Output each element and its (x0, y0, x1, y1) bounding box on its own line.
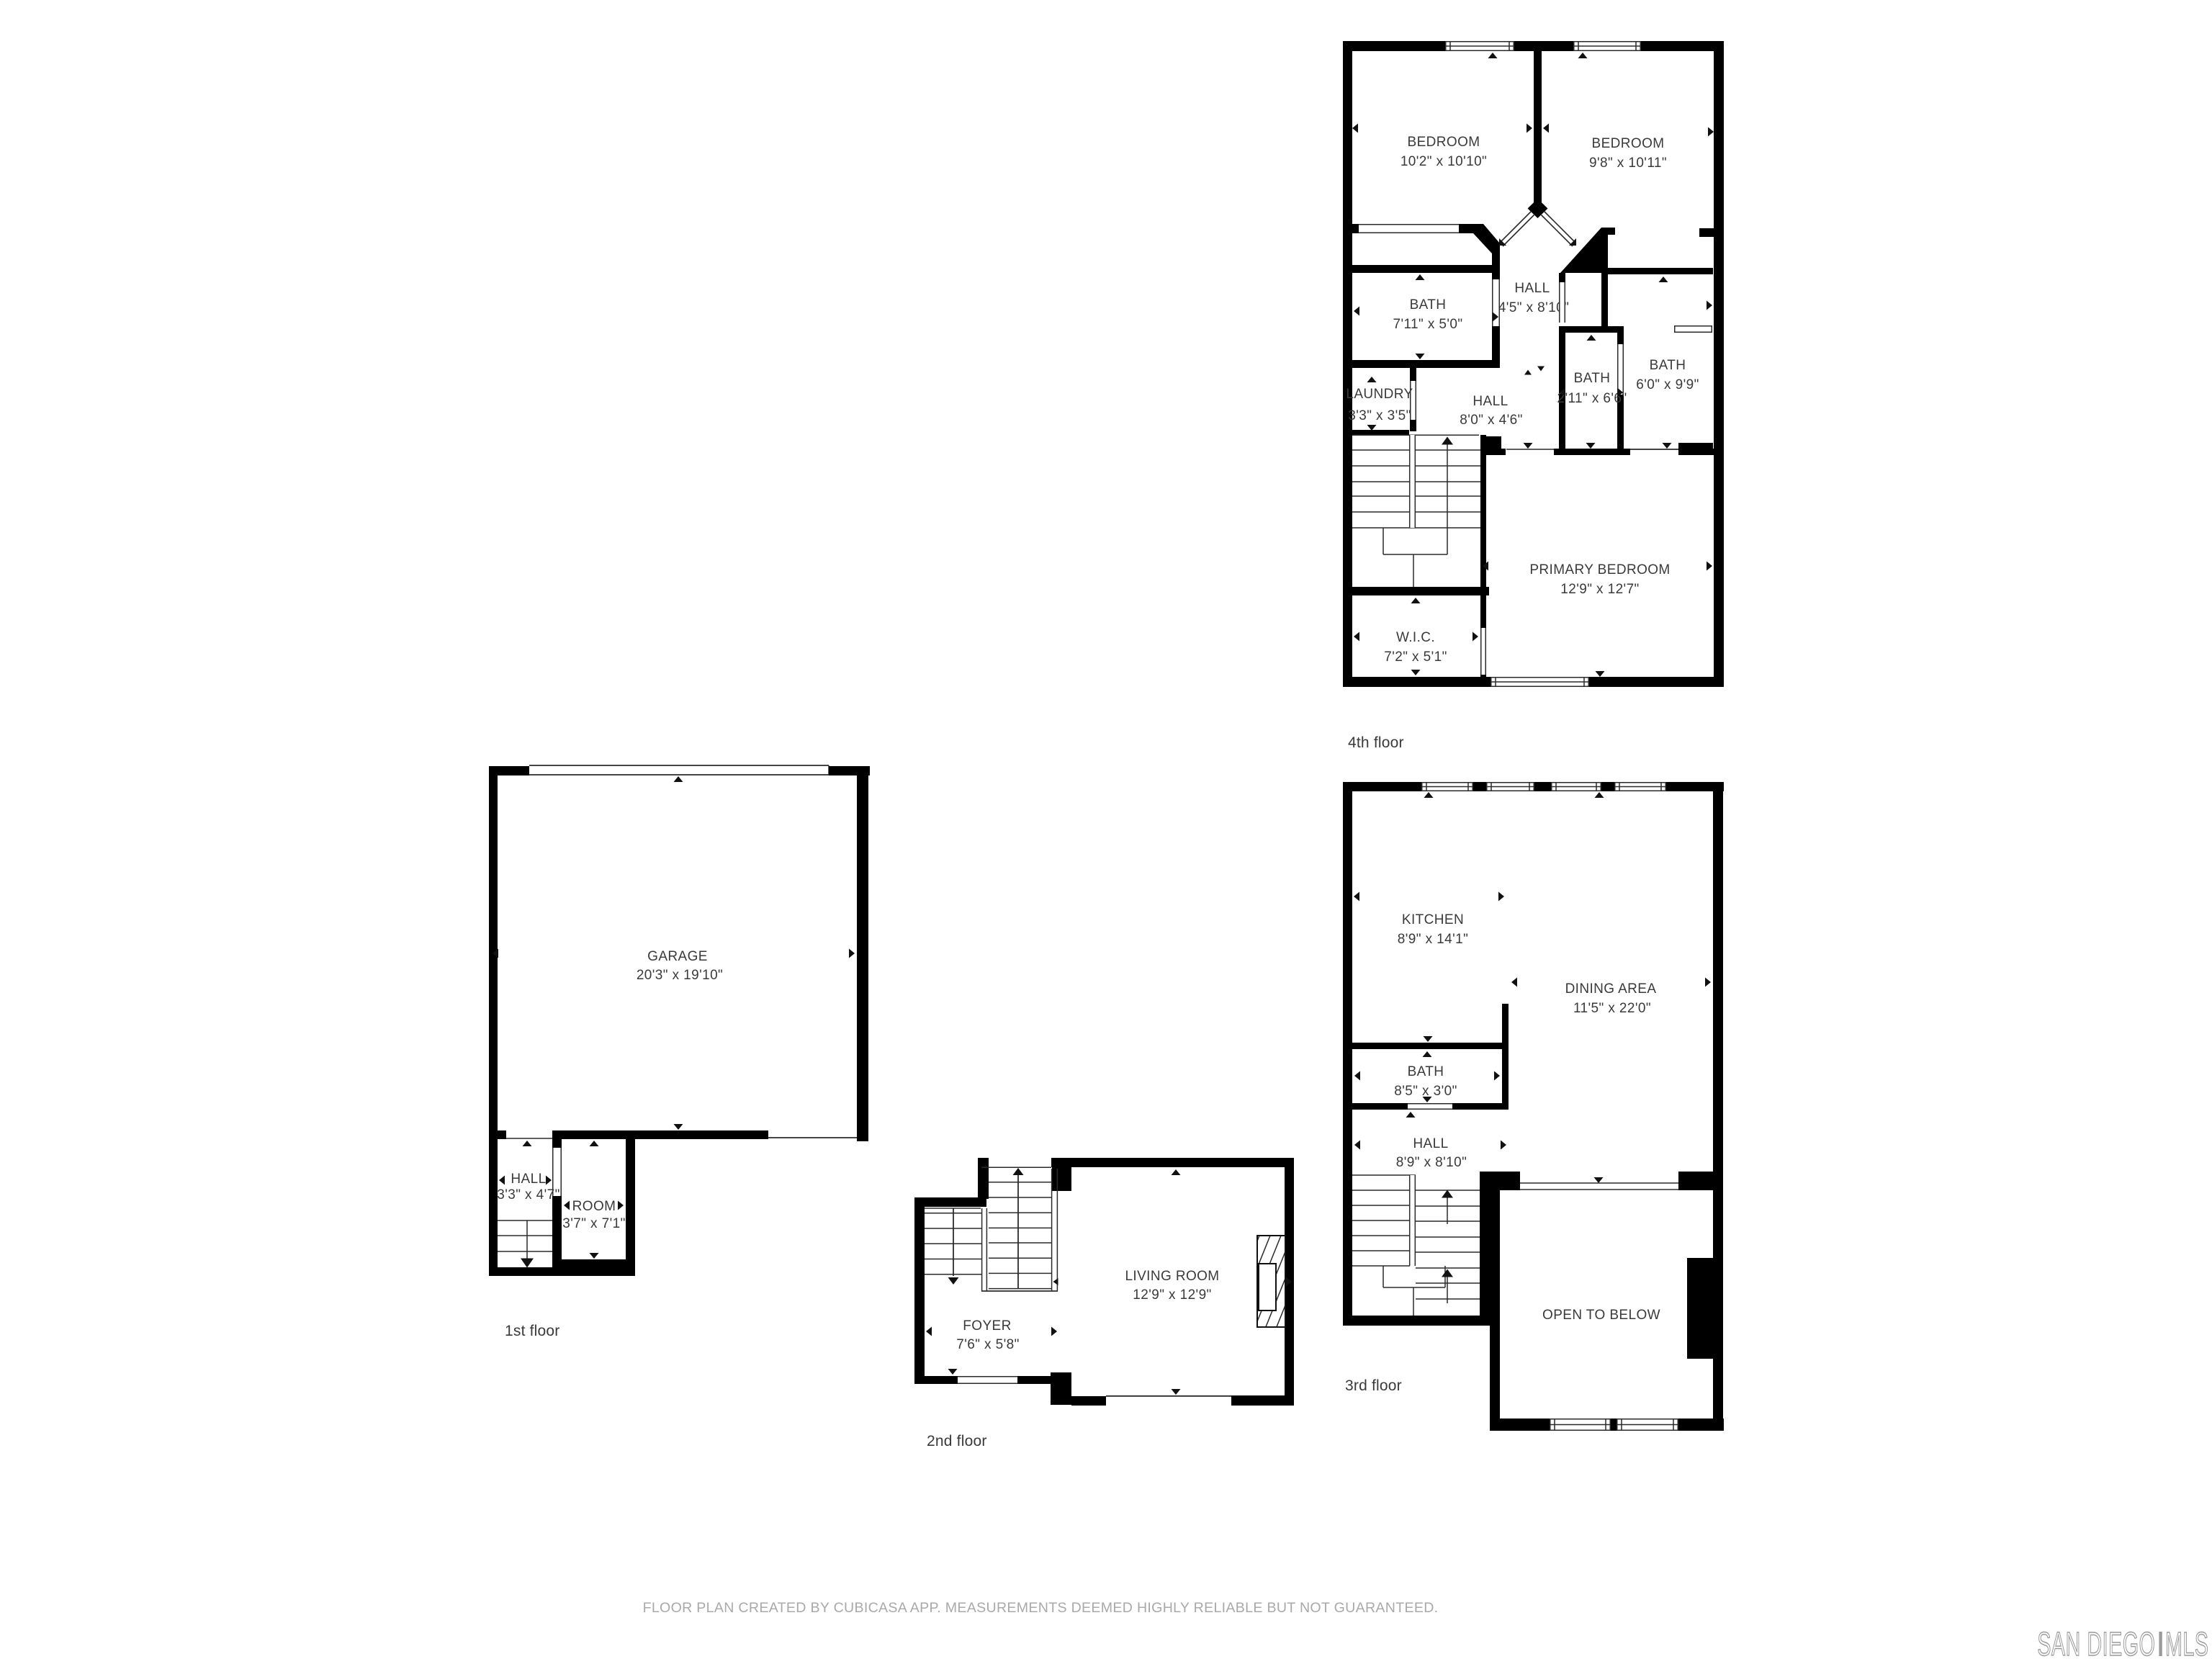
svg-text:7'2" x 5'1": 7'2" x 5'1" (1384, 649, 1447, 665)
svg-text:6'0" x 9'9": 6'0" x 9'9" (1636, 377, 1699, 392)
svg-text:BATH: BATH (1650, 358, 1686, 373)
svg-text:BEDROOM: BEDROOM (1408, 135, 1480, 150)
svg-text:20'3" x 19'10": 20'3" x 19'10" (637, 968, 723, 983)
svg-text:11'5" x 22'0": 11'5" x 22'0" (1573, 1001, 1651, 1016)
svg-text:4'5" x 8'10": 4'5" x 8'10" (1498, 300, 1569, 315)
svg-text:1st floor: 1st floor (505, 1323, 560, 1339)
svg-text:DINING AREA: DINING AREA (1565, 981, 1657, 997)
svg-text:4th floor: 4th floor (1348, 734, 1404, 751)
svg-text:7'11" x 5'0": 7'11" x 5'0" (1393, 317, 1462, 332)
svg-text:12'9" x 12'9": 12'9" x 12'9" (1133, 1287, 1211, 1303)
svg-text:PRIMARY BEDROOM: PRIMARY BEDROOM (1529, 562, 1670, 577)
svg-text:7'6" x 5'8": 7'6" x 5'8" (956, 1337, 1019, 1352)
svg-text:8'5" x 3'0": 8'5" x 3'0" (1394, 1084, 1457, 1099)
svg-text:2'11" x 6'6": 2'11" x 6'6" (1557, 391, 1627, 406)
svg-text:BEDROOM: BEDROOM (1592, 136, 1665, 151)
svg-text:BATH: BATH (1408, 1064, 1444, 1079)
svg-text:3'7" x 7'1": 3'7" x 7'1" (562, 1216, 625, 1231)
svg-text:3'3" x 3'5": 3'3" x 3'5" (1348, 408, 1411, 423)
svg-text:ROOM: ROOM (572, 1199, 616, 1214)
svg-text:BATH: BATH (1574, 371, 1611, 386)
svg-text:HALL: HALL (1514, 281, 1550, 296)
svg-text:12'9" x 12'7": 12'9" x 12'7" (1560, 582, 1639, 597)
svg-text:3rd floor: 3rd floor (1345, 1377, 1402, 1394)
svg-text:OPEN TO BELOW: OPEN TO BELOW (1542, 1308, 1660, 1323)
svg-text:HALL: HALL (1473, 394, 1508, 409)
svg-text:FOYER: FOYER (963, 1318, 1011, 1334)
svg-text:LIVING ROOM: LIVING ROOM (1125, 1269, 1219, 1284)
svg-text:KITCHEN: KITCHEN (1402, 912, 1464, 927)
svg-text:8'9" x 14'1": 8'9" x 14'1" (1398, 932, 1468, 947)
svg-text:10'2" x 10'10": 10'2" x 10'10" (1401, 154, 1487, 169)
svg-text:9'8" x 10'11": 9'8" x 10'11" (1589, 156, 1667, 171)
svg-text:LAUNDRY: LAUNDRY (1346, 387, 1413, 402)
svg-text:8'0" x 4'6": 8'0" x 4'6" (1460, 413, 1522, 428)
svg-text:W.I.C.: W.I.C. (1396, 630, 1435, 645)
svg-text:HALL: HALL (511, 1172, 546, 1187)
svg-text:2nd floor: 2nd floor (927, 1433, 987, 1449)
svg-text:SAN DIEGO: SAN DIEGO (2037, 1626, 2155, 1659)
svg-text:FLOOR PLAN CREATED BY CUBICASA: FLOOR PLAN CREATED BY CUBICASA APP. MEAS… (643, 1600, 1439, 1616)
svg-text:3'3" x 4'7": 3'3" x 4'7" (497, 1187, 559, 1202)
svg-text:HALL: HALL (1413, 1136, 1448, 1151)
svg-text:8'9" x 8'10": 8'9" x 8'10" (1396, 1155, 1467, 1170)
svg-text:GARAGE: GARAGE (647, 949, 708, 964)
svg-text:BATH: BATH (1410, 297, 1447, 313)
svg-text:MLS: MLS (2165, 1626, 2209, 1659)
